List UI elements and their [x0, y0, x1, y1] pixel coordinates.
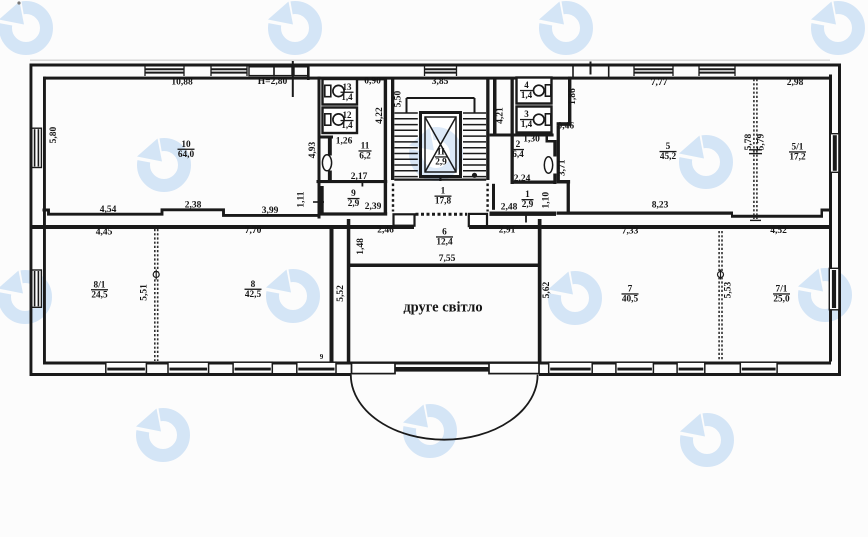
svg-text:2,17: 2,17	[351, 172, 368, 182]
svg-text:1,48: 1,48	[356, 238, 366, 255]
svg-text:9: 9	[351, 189, 356, 199]
svg-text:3: 3	[524, 109, 529, 119]
svg-text:5,62: 5,62	[542, 282, 552, 299]
svg-text:2,91: 2,91	[499, 225, 516, 235]
svg-text:8,23: 8,23	[652, 201, 669, 211]
svg-text:25,0: 25,0	[773, 295, 790, 305]
svg-text:4,52: 4,52	[770, 226, 787, 236]
svg-text:17,8: 17,8	[435, 197, 452, 207]
svg-text:1,86: 1,86	[568, 88, 578, 105]
svg-text:4,54: 4,54	[100, 205, 117, 215]
svg-text:5,79: 5,79	[757, 133, 767, 150]
svg-text:5,80: 5,80	[49, 126, 59, 143]
svg-text:42,5: 42,5	[245, 290, 262, 300]
svg-text:7/1: 7/1	[776, 285, 788, 295]
svg-text:2,39: 2,39	[365, 202, 382, 212]
svg-text:1: 1	[441, 187, 446, 197]
svg-text:1,11: 1,11	[297, 191, 307, 207]
svg-text:4,21: 4,21	[496, 107, 506, 124]
svg-text:2,38: 2,38	[185, 200, 202, 210]
svg-text:0,46: 0,46	[557, 122, 574, 132]
svg-text:2,9: 2,9	[348, 199, 360, 209]
svg-text:3,85: 3,85	[432, 77, 449, 87]
svg-text:2: 2	[516, 140, 521, 150]
svg-text:5: 5	[666, 142, 671, 152]
svg-text:1,4: 1,4	[521, 119, 533, 129]
svg-text:40,5: 40,5	[622, 295, 639, 305]
svg-text:II: II	[437, 148, 445, 158]
svg-text:1: 1	[525, 190, 530, 200]
svg-text:7,55: 7,55	[439, 254, 456, 264]
svg-text:12: 12	[343, 110, 353, 120]
svg-text:45,2: 45,2	[660, 152, 677, 162]
svg-text:5,52: 5,52	[336, 285, 346, 302]
svg-text:10,88: 10,88	[171, 78, 193, 88]
svg-text:1,26: 1,26	[336, 137, 353, 147]
svg-text:7,77: 7,77	[651, 78, 668, 88]
svg-text:1,30: 1,30	[523, 134, 540, 144]
svg-text:13: 13	[343, 82, 353, 92]
svg-text:10: 10	[181, 140, 191, 150]
svg-text:1,4: 1,4	[341, 92, 353, 102]
svg-text:1,4: 1,4	[521, 90, 533, 100]
svg-text:5,50: 5,50	[393, 90, 403, 107]
svg-text:2,24: 2,24	[514, 174, 531, 184]
svg-text:11: 11	[361, 142, 370, 152]
svg-text:1,4: 1,4	[341, 120, 353, 130]
svg-text:H=2,80: H=2,80	[258, 77, 288, 87]
svg-text:4,22: 4,22	[375, 107, 385, 124]
svg-text:2,98: 2,98	[787, 78, 804, 88]
svg-text:4,93: 4,93	[308, 141, 318, 158]
svg-text:8/1: 8/1	[94, 280, 106, 290]
svg-text:8: 8	[251, 280, 256, 290]
svg-text:17,2: 17,2	[789, 153, 806, 163]
svg-text:6: 6	[442, 228, 447, 238]
svg-text:2,48: 2,48	[501, 203, 518, 213]
svg-text:24,5: 24,5	[91, 290, 108, 300]
svg-text:5,78: 5,78	[744, 133, 754, 150]
svg-text:4,45: 4,45	[96, 227, 113, 237]
svg-text:3,99: 3,99	[262, 206, 279, 216]
svg-text:0,90: 0,90	[364, 77, 381, 87]
svg-text:7: 7	[628, 285, 633, 295]
svg-text:9: 9	[320, 353, 324, 361]
svg-text:7,33: 7,33	[622, 226, 639, 236]
svg-text:2,46: 2,46	[377, 225, 394, 235]
svg-text:4: 4	[524, 80, 529, 90]
svg-text:6,4: 6,4	[512, 150, 524, 160]
svg-text:7,70: 7,70	[245, 226, 262, 236]
svg-text:3,71: 3,71	[557, 159, 567, 176]
svg-text:друге світло: друге світло	[403, 299, 482, 315]
svg-text:5/1: 5/1	[792, 143, 804, 153]
svg-text:5,51: 5,51	[140, 284, 150, 301]
svg-text:64,0: 64,0	[178, 150, 195, 160]
svg-text:12,4: 12,4	[436, 238, 453, 248]
svg-text:2,9: 2,9	[522, 200, 534, 210]
svg-text:5,53: 5,53	[724, 282, 734, 299]
svg-text:6,2: 6,2	[359, 152, 371, 162]
svg-text:1,10: 1,10	[542, 192, 552, 209]
